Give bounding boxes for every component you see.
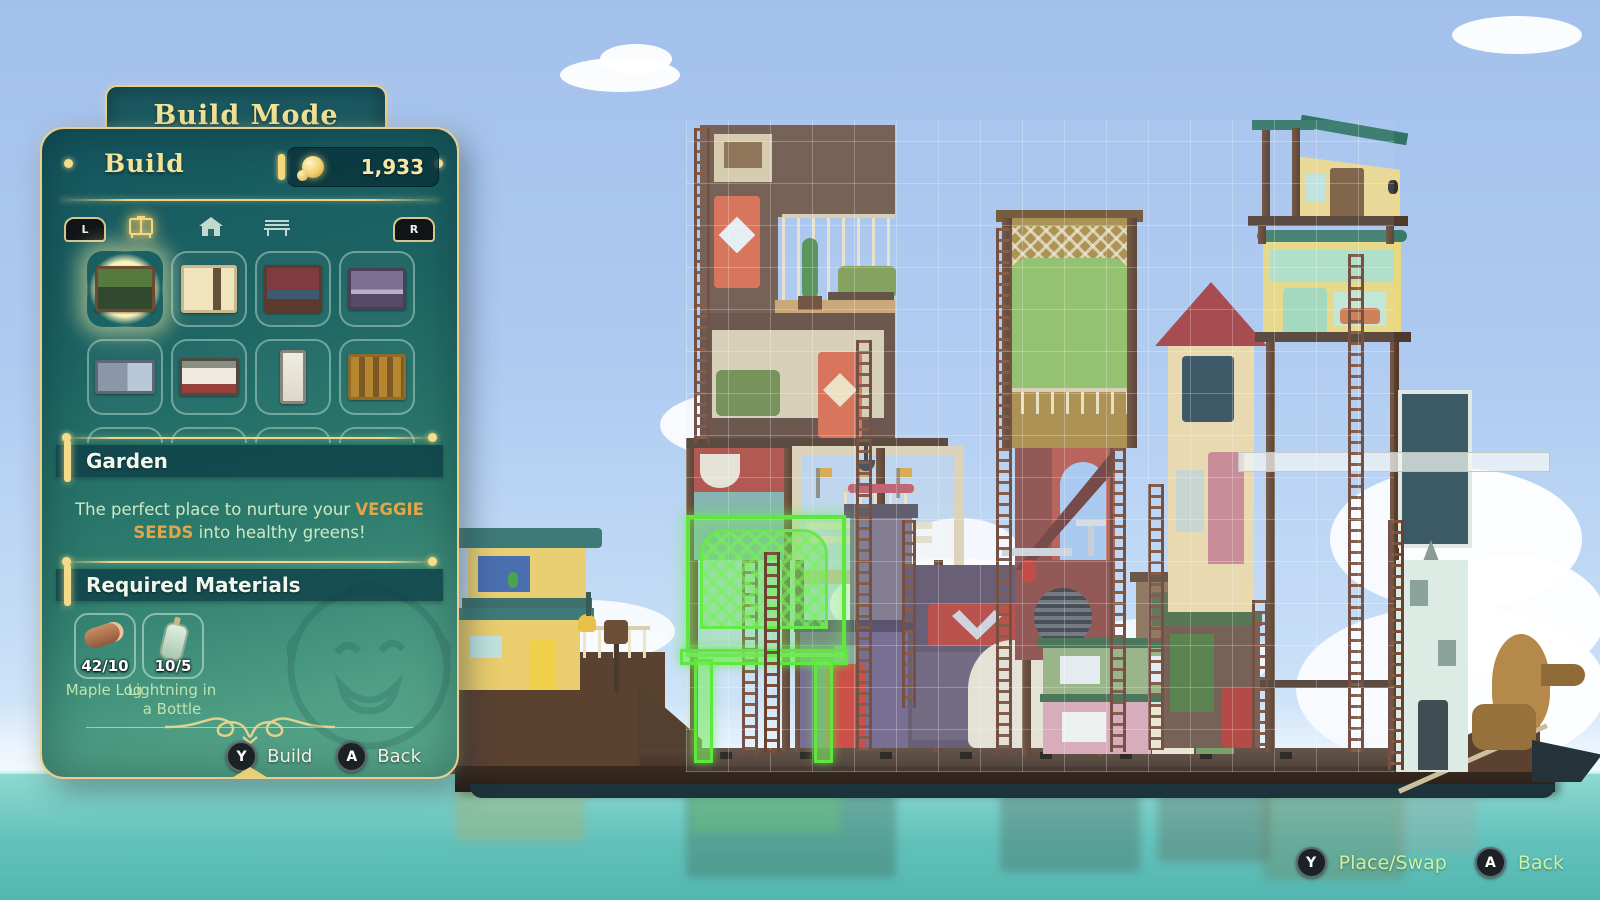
figurehead-wing — [1472, 704, 1536, 750]
header-separator — [60, 199, 439, 201]
gold-dot-icon — [64, 159, 73, 168]
hull-keel — [470, 784, 1555, 798]
cabin-balcony — [462, 598, 592, 608]
house-thumbnail — [181, 265, 237, 313]
controller-y-button[interactable]: Y — [1296, 847, 1327, 878]
bell-post — [586, 592, 591, 616]
cabin-window — [470, 636, 502, 658]
controller-a-button[interactable]: A — [1475, 847, 1506, 878]
section-divider — [68, 437, 431, 439]
panel-section-label: Build — [104, 149, 185, 178]
build-grid-overlay — [686, 120, 1394, 772]
garden-thumbnail[interactable] — [87, 251, 163, 327]
log-icon — [82, 619, 126, 650]
gold-bar-accent — [64, 564, 71, 606]
ladder — [764, 552, 780, 754]
build-mode-title: Build Mode — [153, 100, 338, 131]
cabin-roof-upper — [452, 528, 602, 548]
material-count: 10/5 — [144, 657, 202, 675]
place-swap-label[interactable]: Place/Swap — [1339, 852, 1447, 874]
garden-thumbnail — [95, 266, 155, 312]
gold-bar-accent — [64, 440, 71, 482]
ghost-garden-leg — [694, 659, 713, 763]
right-bumper-button[interactable]: R — [393, 217, 435, 242]
pale-door — [1418, 700, 1448, 770]
lamp-house — [604, 620, 628, 644]
material-maple-log: 42/10 — [74, 613, 136, 679]
currency-amount: 1,933 — [324, 155, 438, 179]
currency-notch — [278, 154, 285, 180]
panel-header: Build 1,933 — [42, 143, 457, 187]
material-count: 42/10 — [76, 657, 134, 675]
cabin-art — [478, 556, 530, 592]
game-screen: Build Mode Build 1,933 L — [0, 0, 1600, 900]
cellar-thumbnail[interactable] — [171, 339, 247, 415]
smithy-thumbnail — [348, 354, 406, 400]
build-panel: Build 1,933 L — [40, 127, 459, 779]
pale-window — [1438, 640, 1456, 666]
building-tile-partial[interactable] — [171, 427, 247, 443]
house-thumbnail[interactable] — [171, 251, 247, 327]
currency-display: 1,933 — [287, 147, 439, 187]
building-tile-partial[interactable] — [87, 427, 163, 443]
lamp-post — [614, 640, 619, 692]
glim-coin-icon — [302, 156, 324, 178]
foundry-thumbnail — [348, 268, 406, 310]
ship-bell — [578, 614, 596, 632]
material-lightning-bottle: 10/5 — [142, 613, 204, 679]
smithy-thumbnail[interactable] — [339, 339, 415, 415]
bench-icon[interactable] — [260, 211, 294, 243]
pale-window — [1410, 580, 1428, 606]
foundry-thumbnail[interactable] — [339, 251, 415, 327]
windmill-thumbnail[interactable] — [255, 339, 331, 415]
left-bumper-button[interactable]: L — [64, 217, 106, 242]
ghost-garden-leg — [814, 659, 833, 763]
cellar-thumbnail — [179, 358, 239, 396]
cloud — [1452, 16, 1582, 54]
item-name-band: Garden — [56, 445, 443, 477]
cloud — [600, 44, 672, 74]
building-tile-partial[interactable] — [255, 427, 331, 443]
item-description: The perfect place to nurture your VEGGIE… — [66, 498, 433, 544]
placement-hud: Y Place/Swap A Back — [1296, 847, 1564, 878]
gold-dot-icon — [428, 433, 437, 442]
house-icon[interactable] — [194, 211, 228, 243]
back-label[interactable]: Back — [1518, 852, 1564, 874]
kitchen-thumbnail[interactable] — [255, 251, 331, 327]
loom-thumbnail[interactable] — [87, 339, 163, 415]
kitchen-thumbnail — [264, 265, 322, 313]
cabin-door — [530, 640, 556, 690]
selected-item-name: Garden — [86, 449, 168, 473]
building-tile-partial[interactable] — [339, 427, 415, 443]
stella-face-watermark — [249, 553, 459, 779]
loom-thumbnail — [95, 360, 155, 394]
parrot — [508, 572, 518, 588]
panel-bottom-ornament — [230, 767, 270, 779]
figurehead-beak — [1541, 664, 1585, 686]
cabin-eave — [448, 608, 594, 620]
windmill-thumbnail — [280, 350, 306, 404]
dresser-icon[interactable] — [124, 211, 158, 243]
category-tabs: L R — [42, 209, 457, 249]
